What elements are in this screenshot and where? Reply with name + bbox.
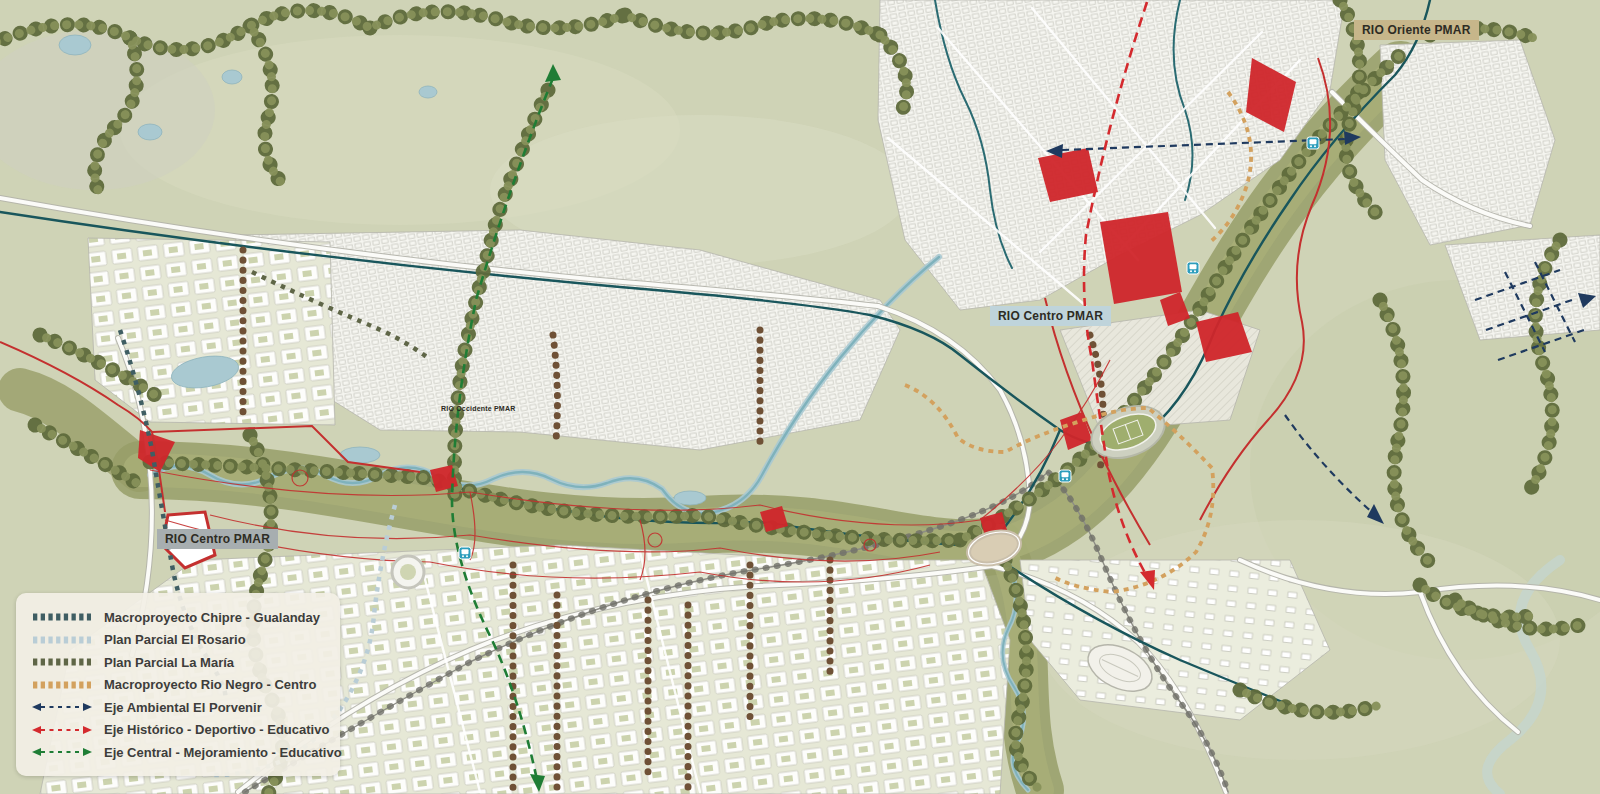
label-rio-centro-pmar-east: RIO Centro PMAR bbox=[990, 306, 1111, 326]
legend-label: Plan Parcial El Rosario bbox=[104, 632, 246, 647]
bus-station-icon bbox=[1059, 470, 1071, 482]
legend-item-eje-ambiental: Eje Ambiental El Porvenir bbox=[30, 696, 326, 719]
bus-station-icon bbox=[459, 547, 471, 559]
legend-item-eje-historico: Eje Histórico - Deportivo - Educativo bbox=[30, 719, 326, 742]
legend-item-eje-central: Eje Central - Mejoramiento - Educativo bbox=[30, 741, 326, 764]
masterplan-map-page: RIO Oriente PMAR RIO Centro PMAR RIO Cen… bbox=[0, 0, 1600, 794]
legend-item-el-rosario: Plan Parcial El Rosario bbox=[30, 629, 326, 652]
dash-arrows-swatch bbox=[30, 701, 94, 713]
dash-squares-swatch bbox=[30, 611, 94, 623]
legend-label: Eje Histórico - Deportivo - Educativo bbox=[104, 722, 329, 737]
legend-item-rio-negro-centro: Macroproyecto Rio Negro - Centro bbox=[30, 674, 326, 697]
legend-label: Eje Ambiental El Porvenir bbox=[104, 700, 262, 715]
dash-squares-swatch bbox=[30, 634, 94, 646]
bus-station-icon bbox=[1307, 137, 1319, 149]
dash-arrows-swatch bbox=[30, 724, 94, 736]
label-rio-centro-pmar-west: RIO Centro PMAR bbox=[157, 529, 278, 549]
dash-squares-swatch bbox=[30, 656, 94, 668]
dash-arrows-swatch bbox=[30, 746, 94, 758]
west-development bbox=[88, 238, 335, 425]
legend-label: Eje Central - Mejoramiento - Educativo bbox=[104, 745, 342, 760]
label-rio-occidente-pmar: RIO Occidente PMAR bbox=[441, 404, 515, 413]
dash-squares-swatch bbox=[30, 679, 94, 691]
label-rio-oriente-pmar: RIO Oriente PMAR bbox=[1354, 20, 1479, 40]
legend-panel: Macroproyecto Chipre - Gualanday Plan Pa… bbox=[16, 593, 340, 776]
legend-label: Macroproyecto Rio Negro - Centro bbox=[104, 677, 316, 692]
legend-item-la-maria: Plan Parcial La María bbox=[30, 651, 326, 674]
legend-label: Macroproyecto Chipre - Gualanday bbox=[104, 610, 320, 625]
bus-station-icon bbox=[1187, 262, 1199, 274]
legend-label: Plan Parcial La María bbox=[104, 655, 234, 670]
roundabout bbox=[392, 556, 424, 588]
legend-item-chipre-gualanday: Macroproyecto Chipre - Gualanday bbox=[30, 606, 326, 629]
